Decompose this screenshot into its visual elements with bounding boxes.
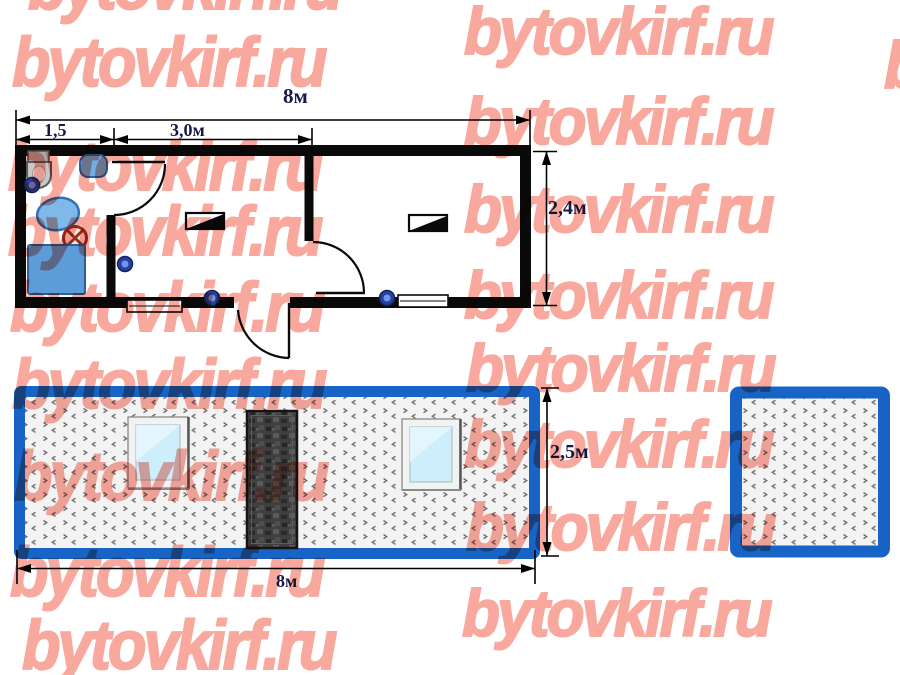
drawing-canvas: 8м 1,5 3,0м 2,4м <box>0 0 900 675</box>
watermark-text: bytovkirf.ru <box>464 176 772 242</box>
window-icon <box>398 295 448 307</box>
watermark-text: bytovkirf.ru <box>14 441 327 511</box>
watermark-text: bytovkirf.ru <box>12 349 325 419</box>
watermark-text: bytovkirf.ru <box>462 580 770 646</box>
watermark-text: bytovkirf.ru <box>8 131 321 201</box>
watermark-text: bytovkirf.ru <box>10 537 323 607</box>
watermark-text: bytovkirf.ru <box>464 88 772 154</box>
watermark-text: bytovkirf.ru <box>464 0 772 64</box>
heater-icon <box>409 215 447 231</box>
watermark-text: bytovkirf.ru <box>12 27 325 97</box>
watermark-text: bytovkirf.ru <box>10 272 323 342</box>
watermark-text: bytovkirf.ru <box>22 610 335 675</box>
wall-lamp-icon <box>380 291 395 306</box>
watermark-text: bytovkirf.ru <box>466 494 774 560</box>
watermark-text: bytovkirf.ru <box>28 0 341 20</box>
watermark-text: bytovkirf.ru <box>466 335 774 401</box>
watermark-text: bytovkirf.ru <box>464 262 772 328</box>
window-icon <box>402 419 461 490</box>
watermark-text: bytovkirf.ru <box>884 32 900 98</box>
watermark-text: bytovkirf.ru <box>8 196 321 266</box>
watermark-text: bytovkirf.ru <box>464 411 772 477</box>
